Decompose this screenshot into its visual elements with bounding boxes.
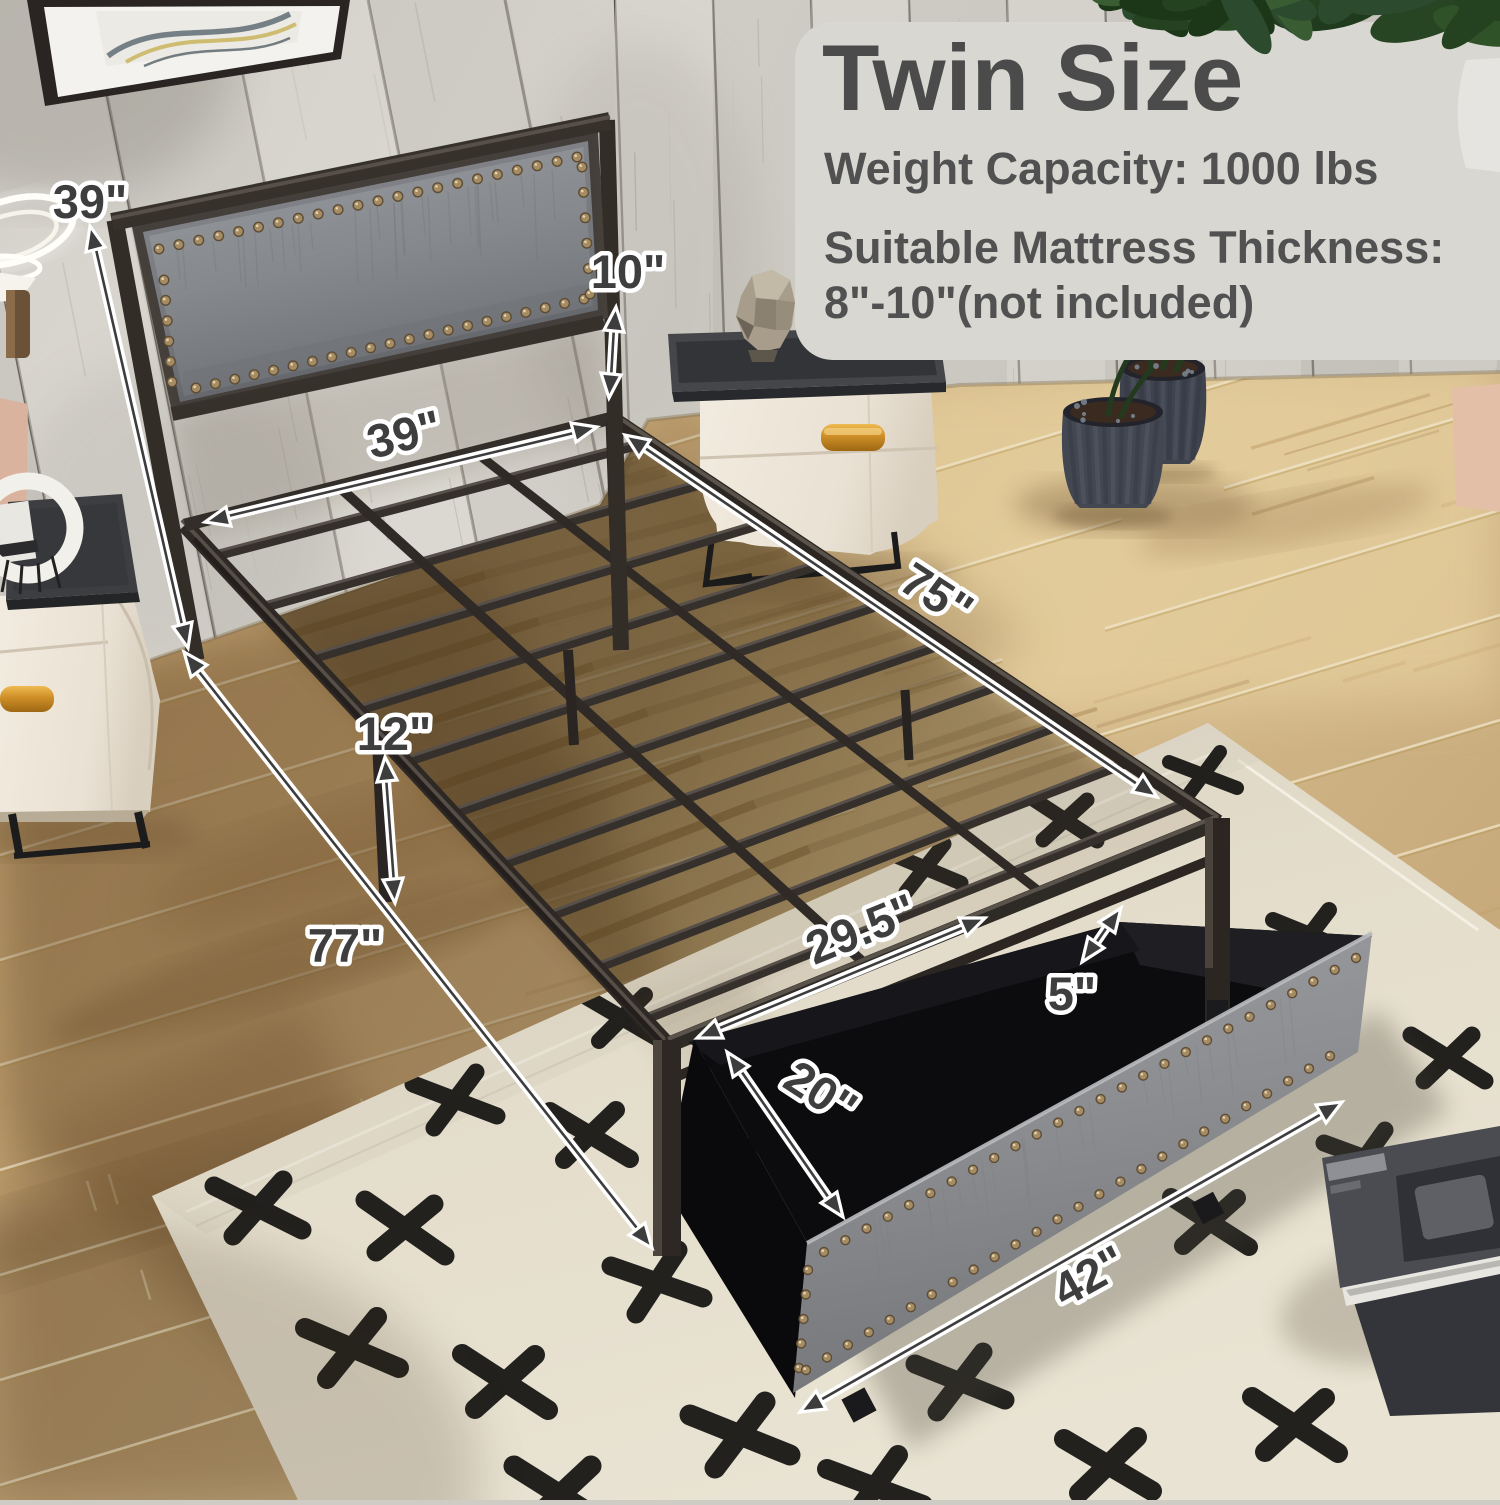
svg-text:5": 5" (1048, 967, 1096, 1020)
svg-text:Suitable Mattress Thickness:: Suitable Mattress Thickness: (824, 222, 1444, 273)
svg-text:Weight Capacity: 1000 lbs: Weight Capacity: 1000 lbs (824, 143, 1378, 194)
svg-text:12": 12" (357, 707, 432, 760)
svg-text:77": 77" (308, 919, 383, 972)
svg-text:39": 39" (53, 175, 128, 228)
svg-text:Twin Size: Twin Size (822, 25, 1243, 130)
svg-text:10": 10" (591, 245, 666, 298)
svg-text:8"-10"(not included): 8"-10"(not included) (824, 277, 1254, 328)
